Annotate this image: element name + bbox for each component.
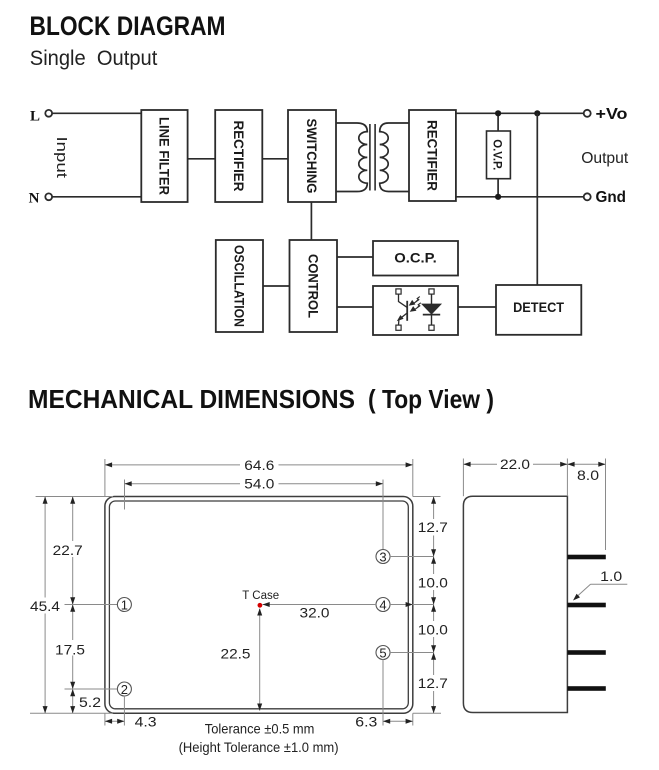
svg-text:Output: Output bbox=[581, 150, 629, 167]
svg-text:54.0: 54.0 bbox=[244, 476, 274, 492]
svg-text:45.4: 45.4 bbox=[30, 598, 60, 614]
svg-text:22.7: 22.7 bbox=[53, 542, 83, 558]
svg-text:32.0: 32.0 bbox=[300, 605, 330, 621]
svg-text:5: 5 bbox=[379, 645, 386, 660]
svg-text:RECTIFIER: RECTIFIER bbox=[231, 121, 246, 192]
svg-text:O.V.P.: O.V.P. bbox=[491, 139, 503, 170]
svg-text:RECTIFIER: RECTIFIER bbox=[425, 120, 440, 191]
svg-text:CONTROL: CONTROL bbox=[306, 254, 321, 318]
svg-text:MECHANICAL DIMENSIONS: MECHANICAL DIMENSIONS bbox=[28, 384, 355, 414]
svg-text:(Height Tolerance ±1.0 mm): (Height Tolerance ±1.0 mm) bbox=[179, 739, 339, 755]
svg-text:Single Output: Single Output bbox=[30, 47, 158, 70]
svg-text:N: N bbox=[29, 190, 40, 206]
svg-text:64.6: 64.6 bbox=[244, 457, 274, 473]
svg-text:SWITCHING: SWITCHING bbox=[304, 119, 319, 194]
svg-text:10.0: 10.0 bbox=[418, 574, 448, 590]
svg-text:O.C.P.: O.C.P. bbox=[394, 249, 437, 265]
svg-text:1: 1 bbox=[121, 597, 128, 612]
svg-text:L: L bbox=[30, 109, 40, 125]
svg-text:Gnd: Gnd bbox=[596, 189, 627, 206]
svg-text:+Vo: +Vo bbox=[596, 106, 628, 123]
svg-text:17.5: 17.5 bbox=[55, 642, 85, 658]
svg-text:Input: Input bbox=[53, 137, 70, 180]
svg-text:4: 4 bbox=[379, 597, 386, 612]
svg-text:22.0: 22.0 bbox=[500, 456, 530, 472]
svg-text:6.3: 6.3 bbox=[355, 713, 377, 729]
svg-text:( Top View ): ( Top View ) bbox=[368, 384, 494, 414]
svg-text:22.5: 22.5 bbox=[221, 645, 251, 661]
svg-text:12.7: 12.7 bbox=[418, 675, 448, 691]
svg-text:OSCILLATION: OSCILLATION bbox=[232, 245, 247, 327]
svg-text:8.0: 8.0 bbox=[577, 467, 599, 483]
svg-text:3: 3 bbox=[379, 549, 386, 564]
svg-text:2: 2 bbox=[121, 682, 128, 697]
svg-text:4.3: 4.3 bbox=[135, 713, 157, 729]
svg-text:T Case: T Case bbox=[242, 590, 279, 602]
svg-text:BLOCK DIAGRAM: BLOCK DIAGRAM bbox=[30, 11, 226, 41]
svg-text:DETECT: DETECT bbox=[513, 299, 564, 315]
svg-text:5.2: 5.2 bbox=[79, 694, 101, 710]
svg-text:10.0: 10.0 bbox=[418, 621, 448, 637]
svg-text:12.7: 12.7 bbox=[418, 519, 448, 535]
svg-text:LINE FILTER: LINE FILTER bbox=[157, 117, 172, 195]
svg-text:Tolerance ±0.5 mm: Tolerance ±0.5 mm bbox=[205, 721, 315, 737]
svg-text:1.0: 1.0 bbox=[600, 568, 622, 584]
